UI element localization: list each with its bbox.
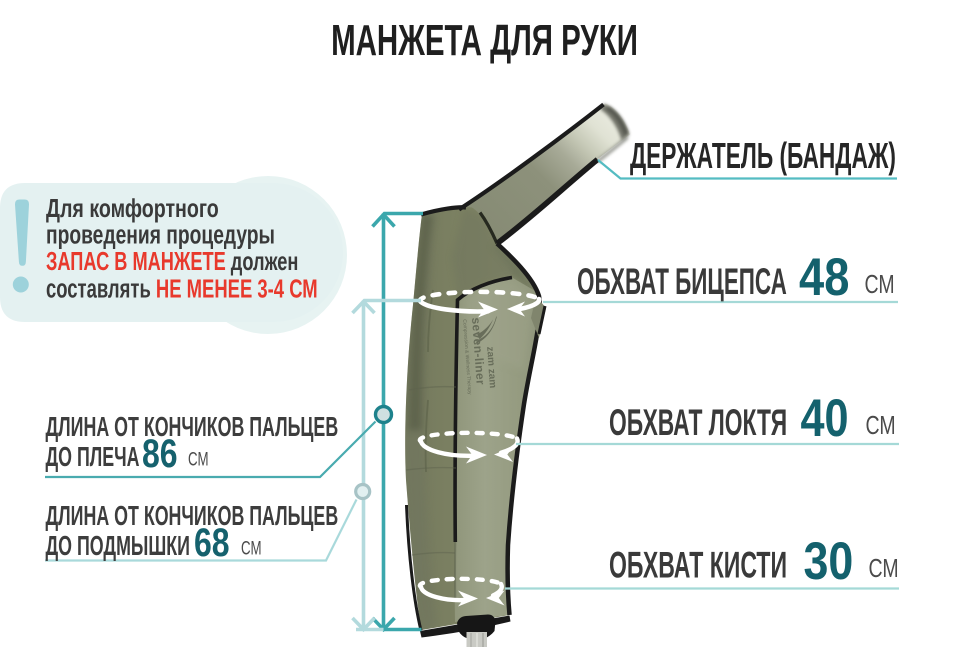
svg-text:ДЕРЖАТЕЛЬ (БАНДАЖ): ДЕРЖАТЕЛЬ (БАНДАЖ): [630, 137, 896, 176]
svg-text:ДЛИНА ОТ КОНЧИКОВ ПАЛЬЦЕВ: ДЛИНА ОТ КОНЧИКОВ ПАЛЬЦЕВ: [46, 500, 339, 531]
svg-text:проведения процедуры: проведения процедуры: [46, 220, 275, 250]
svg-text:68: 68: [194, 520, 230, 565]
svg-text:48: 48: [799, 248, 849, 307]
svg-text:МАНЖЕТА ДЛЯ РУКИ: МАНЖЕТА ДЛЯ РУКИ: [331, 15, 638, 64]
svg-text:30: 30: [804, 533, 854, 591]
svg-text:ОБХВАТ БИЦЕПСА: ОБХВАТ БИЦЕПСА: [577, 261, 787, 302]
svg-text:ОБХВАТ ЛОКТЯ: ОБХВАТ ЛОКТЯ: [609, 401, 787, 443]
svg-text:СМ: СМ: [865, 269, 895, 298]
svg-text:86: 86: [142, 431, 178, 476]
svg-text:ЗАПАС В МАНЖЕТЕ должен: ЗАПАС В МАНЖЕТЕ должен: [46, 247, 298, 276]
svg-text:40: 40: [801, 389, 849, 448]
svg-text:составлять НЕ МЕНЕЕ 3-4 СМ: составлять НЕ МЕНЕЕ 3-4 СМ: [46, 274, 318, 303]
svg-text:СМ: СМ: [869, 553, 899, 582]
svg-text:Для комфортного: Для комфортного: [46, 193, 219, 222]
svg-text:СМ: СМ: [866, 410, 896, 439]
svg-text:ДЛИНА ОТ КОНЧИКОВ ПАЛЬЦЕВ: ДЛИНА ОТ КОНЧИКОВ ПАЛЬЦЕВ: [46, 411, 339, 442]
svg-text:ОБХВАТ КИСТИ: ОБХВАТ КИСТИ: [609, 544, 787, 586]
svg-text:ДО ПОДМЫШКИ: ДО ПОДМЫШКИ: [46, 530, 190, 561]
svg-text:ДО ПЛЕЧА: ДО ПЛЕЧА: [46, 441, 140, 472]
svg-text:СМ: СМ: [241, 538, 262, 559]
svg-text:СМ: СМ: [188, 449, 209, 470]
